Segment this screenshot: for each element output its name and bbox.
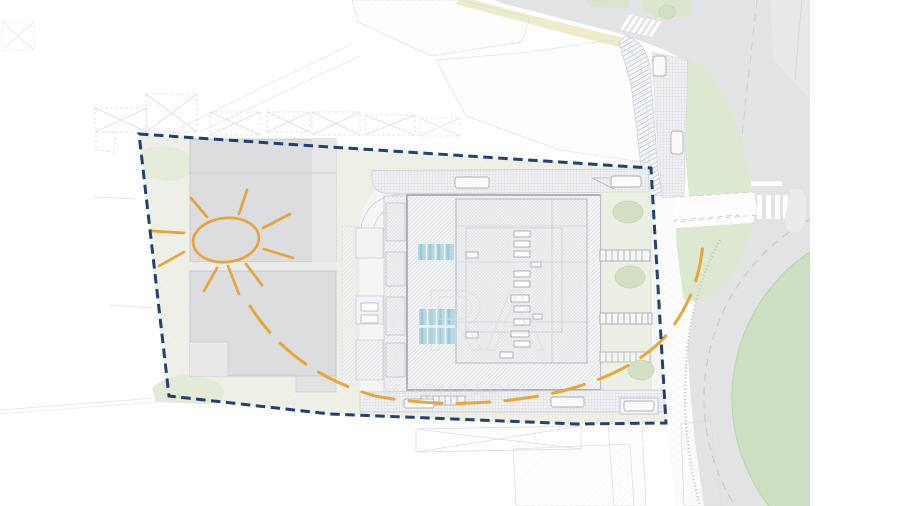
svg-text:RA: RA [424,273,544,369]
